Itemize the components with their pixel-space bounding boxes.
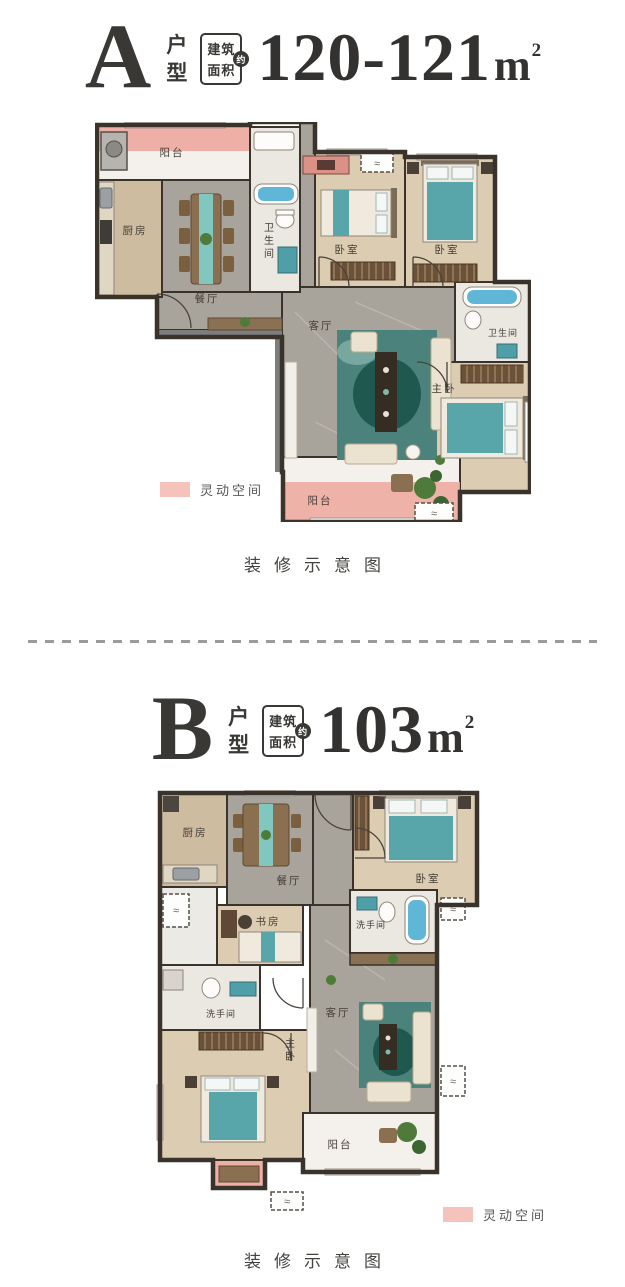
area-unit: m bbox=[494, 44, 531, 88]
plan-b-area: 103 m 2 bbox=[319, 695, 473, 763]
room-label-balcony-top: 阳台 bbox=[160, 146, 185, 159]
corridor-walls bbox=[155, 330, 282, 472]
vanity-icon bbox=[357, 897, 377, 910]
type-char-xing: 型 bbox=[228, 735, 249, 756]
tv-console-icon bbox=[285, 362, 297, 458]
legend-b: 灵动空间 bbox=[443, 1205, 547, 1224]
room-label-bedroom1: 卧室 bbox=[335, 243, 360, 256]
badge-line2: 面积 bbox=[269, 732, 297, 751]
plan-a-header: A 户 型 建筑 面积 约 120-121 m 2 bbox=[0, 16, 625, 97]
badge-approx-circle: 约 bbox=[233, 51, 249, 67]
area-value: 120-121 bbox=[257, 23, 491, 91]
toilet-icon bbox=[465, 311, 481, 329]
building-area-badge: 建筑 面积 约 bbox=[200, 33, 242, 85]
badge-line2: 面积 bbox=[207, 60, 235, 79]
wardrobe-icon bbox=[331, 262, 395, 280]
plant-icon bbox=[388, 954, 398, 964]
coffee-table-icon bbox=[379, 1024, 397, 1070]
dining-table bbox=[179, 194, 234, 284]
room-label-balcony: 阳台 bbox=[328, 1138, 353, 1151]
room-label-living: 客厅 bbox=[326, 1006, 351, 1019]
legend-a: 灵动空间 bbox=[160, 480, 264, 499]
area-value: 103 bbox=[319, 695, 424, 763]
area-sup: 2 bbox=[532, 41, 542, 60]
ac-symbol: ≈ bbox=[450, 1076, 456, 1088]
vanity-icon bbox=[230, 982, 256, 996]
armchair-icon bbox=[379, 1128, 397, 1143]
room-label-living: 客厅 bbox=[309, 319, 334, 332]
type-char-xing: 型 bbox=[166, 63, 187, 84]
type-char-hu: 户 bbox=[166, 35, 187, 56]
room-label-bath2: 卫生间 bbox=[488, 327, 518, 338]
room-label-study: 书房 bbox=[256, 915, 281, 928]
room-label-kitchen: 厨房 bbox=[123, 224, 148, 237]
legend-swatch bbox=[160, 482, 190, 497]
caption-a: 装修示意图 bbox=[0, 551, 625, 576]
ac-symbol: ≈ bbox=[431, 508, 437, 520]
legend-label: 灵动空间 bbox=[483, 1205, 547, 1224]
plant-icon bbox=[397, 1122, 417, 1142]
building-area-badge: 建筑 面积 约 bbox=[262, 705, 304, 757]
ac-symbol: ≈ bbox=[374, 158, 380, 170]
plan-a-type-letter: A bbox=[85, 16, 151, 97]
plan-a-type-label: 户 型 bbox=[166, 35, 187, 84]
plant-icon bbox=[326, 975, 336, 985]
room-label-washroom-top: 洗手间 bbox=[356, 919, 386, 930]
legend-swatch bbox=[443, 1207, 473, 1222]
plant-icon bbox=[261, 830, 271, 840]
section-divider bbox=[28, 640, 597, 643]
caption-b: 装修示意图 bbox=[0, 1247, 625, 1272]
room-label-bedroom2: 卧室 bbox=[435, 243, 460, 256]
wardrobe-icon bbox=[355, 796, 369, 850]
shower-icon bbox=[163, 970, 183, 990]
plant-icon bbox=[200, 233, 212, 245]
badge-line1: 建筑 bbox=[207, 39, 235, 58]
room-label-kitchen: 厨房 bbox=[183, 826, 208, 839]
room-label-master: 主卧 bbox=[432, 382, 457, 395]
plan-b-type-label: 户 型 bbox=[228, 707, 249, 756]
ac-symbol: ≈ bbox=[173, 905, 179, 917]
legend-label: 灵动空间 bbox=[200, 480, 264, 499]
kitchen-counter bbox=[99, 182, 114, 295]
toilet-icon bbox=[202, 978, 220, 998]
room-label-washroom-left: 洗手间 bbox=[206, 1008, 236, 1019]
plan-b-type-letter: B bbox=[152, 688, 213, 769]
bench-icon bbox=[219, 1166, 259, 1182]
room-label-balcony-bottom: 阳台 bbox=[308, 494, 333, 507]
ac-symbol: ≈ bbox=[284, 1196, 290, 1208]
toilet-icon bbox=[379, 902, 395, 922]
room-label-bath1: 卫生间 bbox=[262, 222, 274, 261]
badge-approx-circle: 约 bbox=[295, 723, 311, 739]
room-label-dining: 餐厅 bbox=[195, 292, 220, 305]
type-char-hu: 户 bbox=[228, 707, 249, 728]
wardrobe-icon bbox=[461, 365, 523, 383]
plan-a-floorplan: ≈ ≈ 阳台 厨房 餐厅 卫生间 卧室 卧室 客厅 卫生间 主卧 阳台 bbox=[95, 122, 531, 522]
area-unit: m bbox=[427, 716, 464, 760]
armchair-icon bbox=[391, 474, 413, 492]
room-label-dining: 餐厅 bbox=[277, 874, 302, 887]
area-sup: 2 bbox=[465, 713, 475, 732]
desk-icon bbox=[221, 910, 237, 938]
flyer-page: A 户 型 建筑 面积 约 120-121 m 2 bbox=[0, 0, 625, 1287]
vanity-icon bbox=[497, 344, 517, 358]
plan-b-header: B 户 型 建筑 面积 约 103 m 2 bbox=[0, 688, 625, 769]
sofa-icon bbox=[413, 1012, 431, 1084]
wardrobe-icon bbox=[199, 1032, 263, 1050]
plan-a-area: 120-121 m 2 bbox=[257, 23, 540, 91]
room-label-master: 主卧 bbox=[283, 1038, 295, 1064]
vanity-icon bbox=[278, 247, 297, 273]
fridge-icon bbox=[163, 796, 179, 812]
badge-line1: 建筑 bbox=[269, 711, 297, 730]
tv-console-icon bbox=[307, 1008, 317, 1072]
room-label-bedroom: 卧室 bbox=[416, 872, 441, 885]
wardrobe-icon bbox=[413, 264, 477, 282]
plan-b-floorplan: ≈ ≈ ≈ ≈ 厨房 餐厅 卧室 书房 洗手间 洗手间 主卧 客厅 阳台 bbox=[155, 790, 480, 1215]
